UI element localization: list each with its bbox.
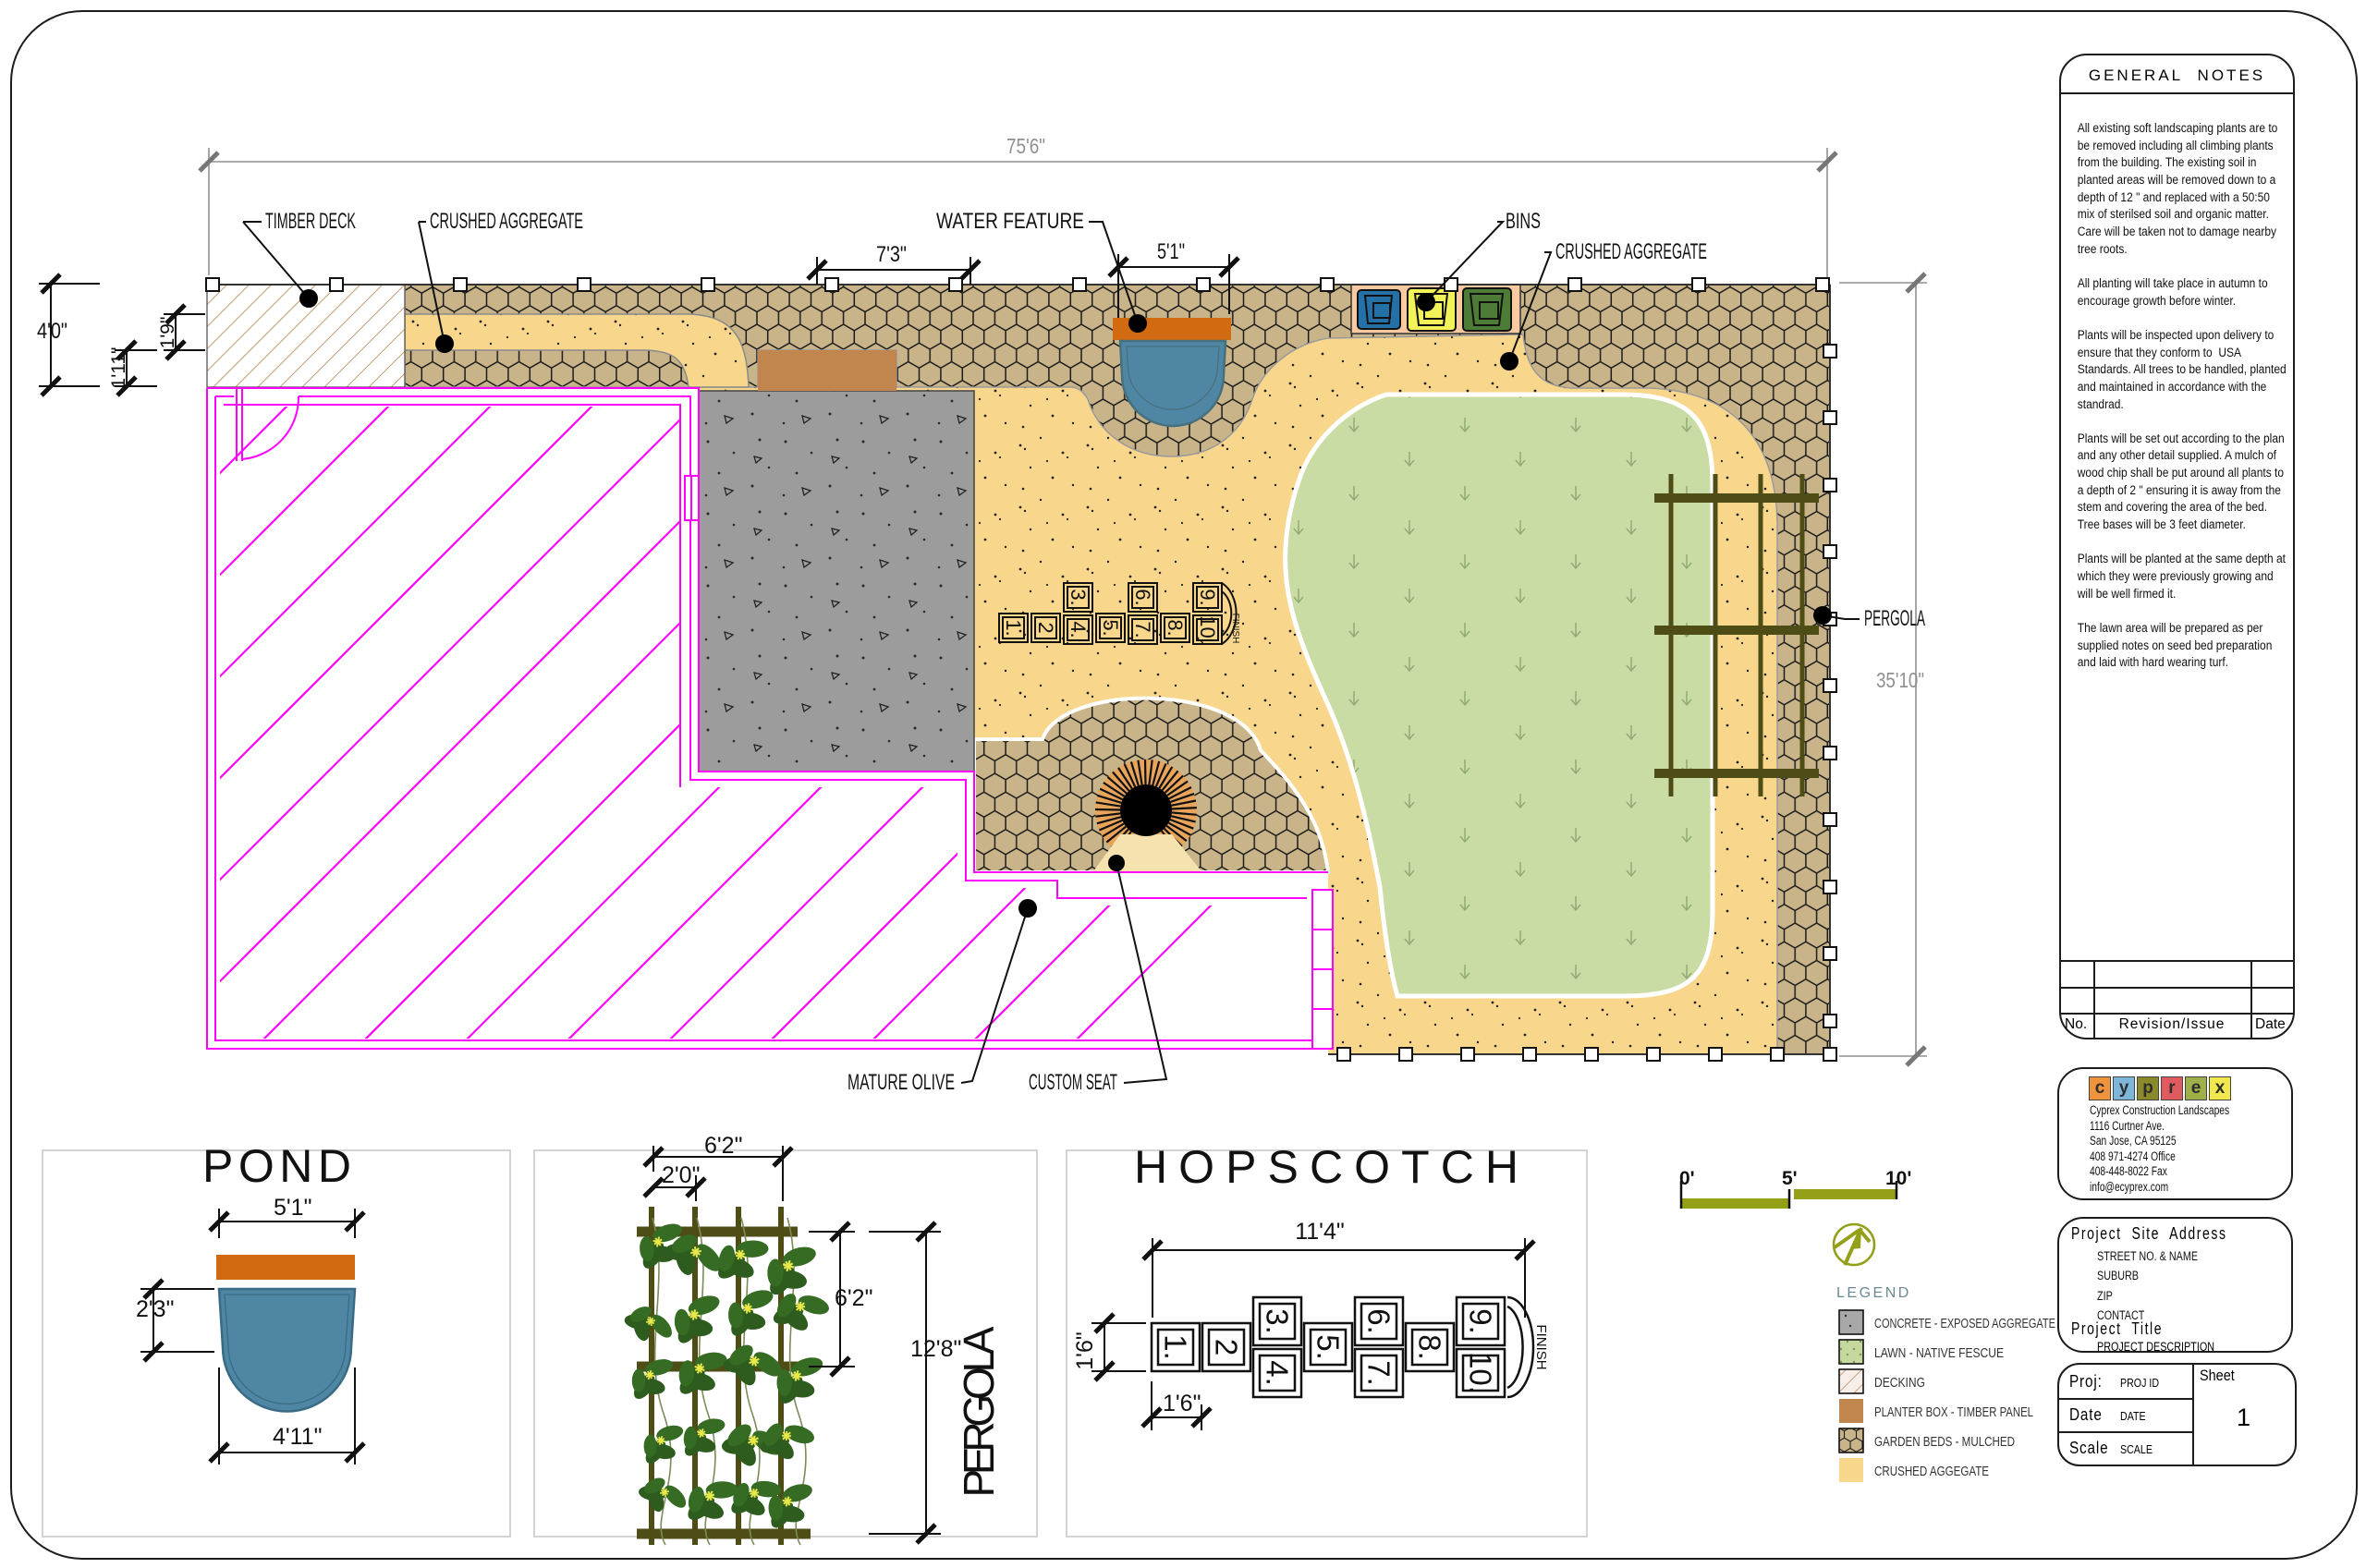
svg-text:5.: 5. xyxy=(1311,1334,1346,1360)
svg-text:LAWN - NATIVE FESCUE: LAWN - NATIVE FESCUE xyxy=(1874,1345,2004,1361)
svg-text:CONCRETE - EXPOSED AGGREGATE: CONCRETE - EXPOSED AGGREGATE xyxy=(1874,1316,2055,1331)
svg-text:2'3": 2'3" xyxy=(136,1296,174,1322)
svg-text:HOPSCOTCH: HOPSCOTCH xyxy=(1134,1141,1518,1193)
svg-text:5'1": 5'1" xyxy=(1157,239,1185,264)
svg-text:8.: 8. xyxy=(1164,619,1187,636)
svg-text:PERGOLA: PERGOLA xyxy=(1864,606,1925,631)
svg-text:1'6": 1'6" xyxy=(1072,1331,1098,1369)
svg-text:2: 2 xyxy=(1210,1339,1244,1355)
svg-text:9.: 9. xyxy=(1196,589,1219,605)
svg-text:4.: 4. xyxy=(1067,621,1090,638)
svg-text:7'3": 7'3" xyxy=(876,242,907,267)
svg-text:3.: 3. xyxy=(1067,589,1090,605)
svg-text:FINISH: FINISH xyxy=(1230,614,1240,644)
svg-text:9.: 9. xyxy=(1464,1308,1498,1334)
svg-text:PLANTER BOX - TIMBER PANEL: PLANTER BOX - TIMBER PANEL xyxy=(1874,1404,2033,1420)
svg-text:DECKING: DECKING xyxy=(1874,1375,1925,1391)
svg-text:CUSTOM SEAT: CUSTOM SEAT xyxy=(1029,1070,1117,1095)
svg-text:BINS: BINS xyxy=(1506,209,1541,234)
svg-text:FINISH: FINISH xyxy=(1533,1324,1549,1369)
svg-text:6.: 6. xyxy=(1362,1308,1396,1334)
svg-text:2'0": 2'0" xyxy=(662,1162,700,1188)
svg-text:3.: 3. xyxy=(1261,1308,1295,1334)
svg-text:10': 10' xyxy=(1885,1168,1911,1189)
svg-text:1.: 1. xyxy=(1159,1334,1193,1360)
svg-text:CRUSHED AGGREGATE: CRUSHED AGGREGATE xyxy=(1555,239,1707,264)
svg-text:10.: 10. xyxy=(1464,1352,1498,1394)
svg-text:5': 5' xyxy=(1782,1168,1798,1189)
svg-text:CRUSHED AGGEGATE: CRUSHED AGGEGATE xyxy=(1874,1464,1989,1479)
svg-text:2: 2 xyxy=(1034,622,1057,633)
svg-text:75'6": 75'6" xyxy=(1006,134,1045,158)
svg-text:TIMBER DECK: TIMBER DECK xyxy=(265,209,356,234)
svg-text:4'11": 4'11" xyxy=(273,1424,323,1450)
svg-text:7.: 7. xyxy=(1131,621,1154,638)
svg-text:4.: 4. xyxy=(1261,1360,1295,1386)
svg-text:LEGEND: LEGEND xyxy=(1836,1285,1911,1301)
svg-text:PERGOLA: PERGOLA xyxy=(955,1326,1003,1497)
svg-text:7.: 7. xyxy=(1362,1360,1396,1386)
svg-text:6'2": 6'2" xyxy=(835,1285,872,1311)
svg-text:1'9": 1'9" xyxy=(157,317,178,349)
svg-text:8.: 8. xyxy=(1413,1334,1447,1360)
svg-text:11'4": 11'4" xyxy=(1295,1219,1345,1245)
svg-text:35'10": 35'10" xyxy=(1876,668,1924,692)
svg-text:5'1": 5'1" xyxy=(274,1195,311,1221)
svg-text:1'6": 1'6" xyxy=(1163,1391,1201,1416)
svg-text:10.: 10. xyxy=(1196,615,1219,644)
svg-text:WATER FEATURE: WATER FEATURE xyxy=(936,209,1084,234)
svg-text:5.: 5. xyxy=(1099,619,1122,636)
svg-text:POND: POND xyxy=(202,1140,351,1192)
svg-text:MATURE OLIVE: MATURE OLIVE xyxy=(848,1070,955,1095)
svg-text:GARDEN BEDS - MULCHED: GARDEN BEDS - MULCHED xyxy=(1874,1434,2015,1450)
svg-text:1'11": 1'11" xyxy=(108,347,129,389)
svg-text:4'0": 4'0" xyxy=(37,319,67,344)
svg-text:CRUSHED AGGREGATE: CRUSHED AGGREGATE xyxy=(430,209,583,234)
svg-text:6.: 6. xyxy=(1131,589,1154,605)
svg-text:6'2": 6'2" xyxy=(704,1133,742,1159)
svg-text:1.: 1. xyxy=(1002,619,1025,636)
